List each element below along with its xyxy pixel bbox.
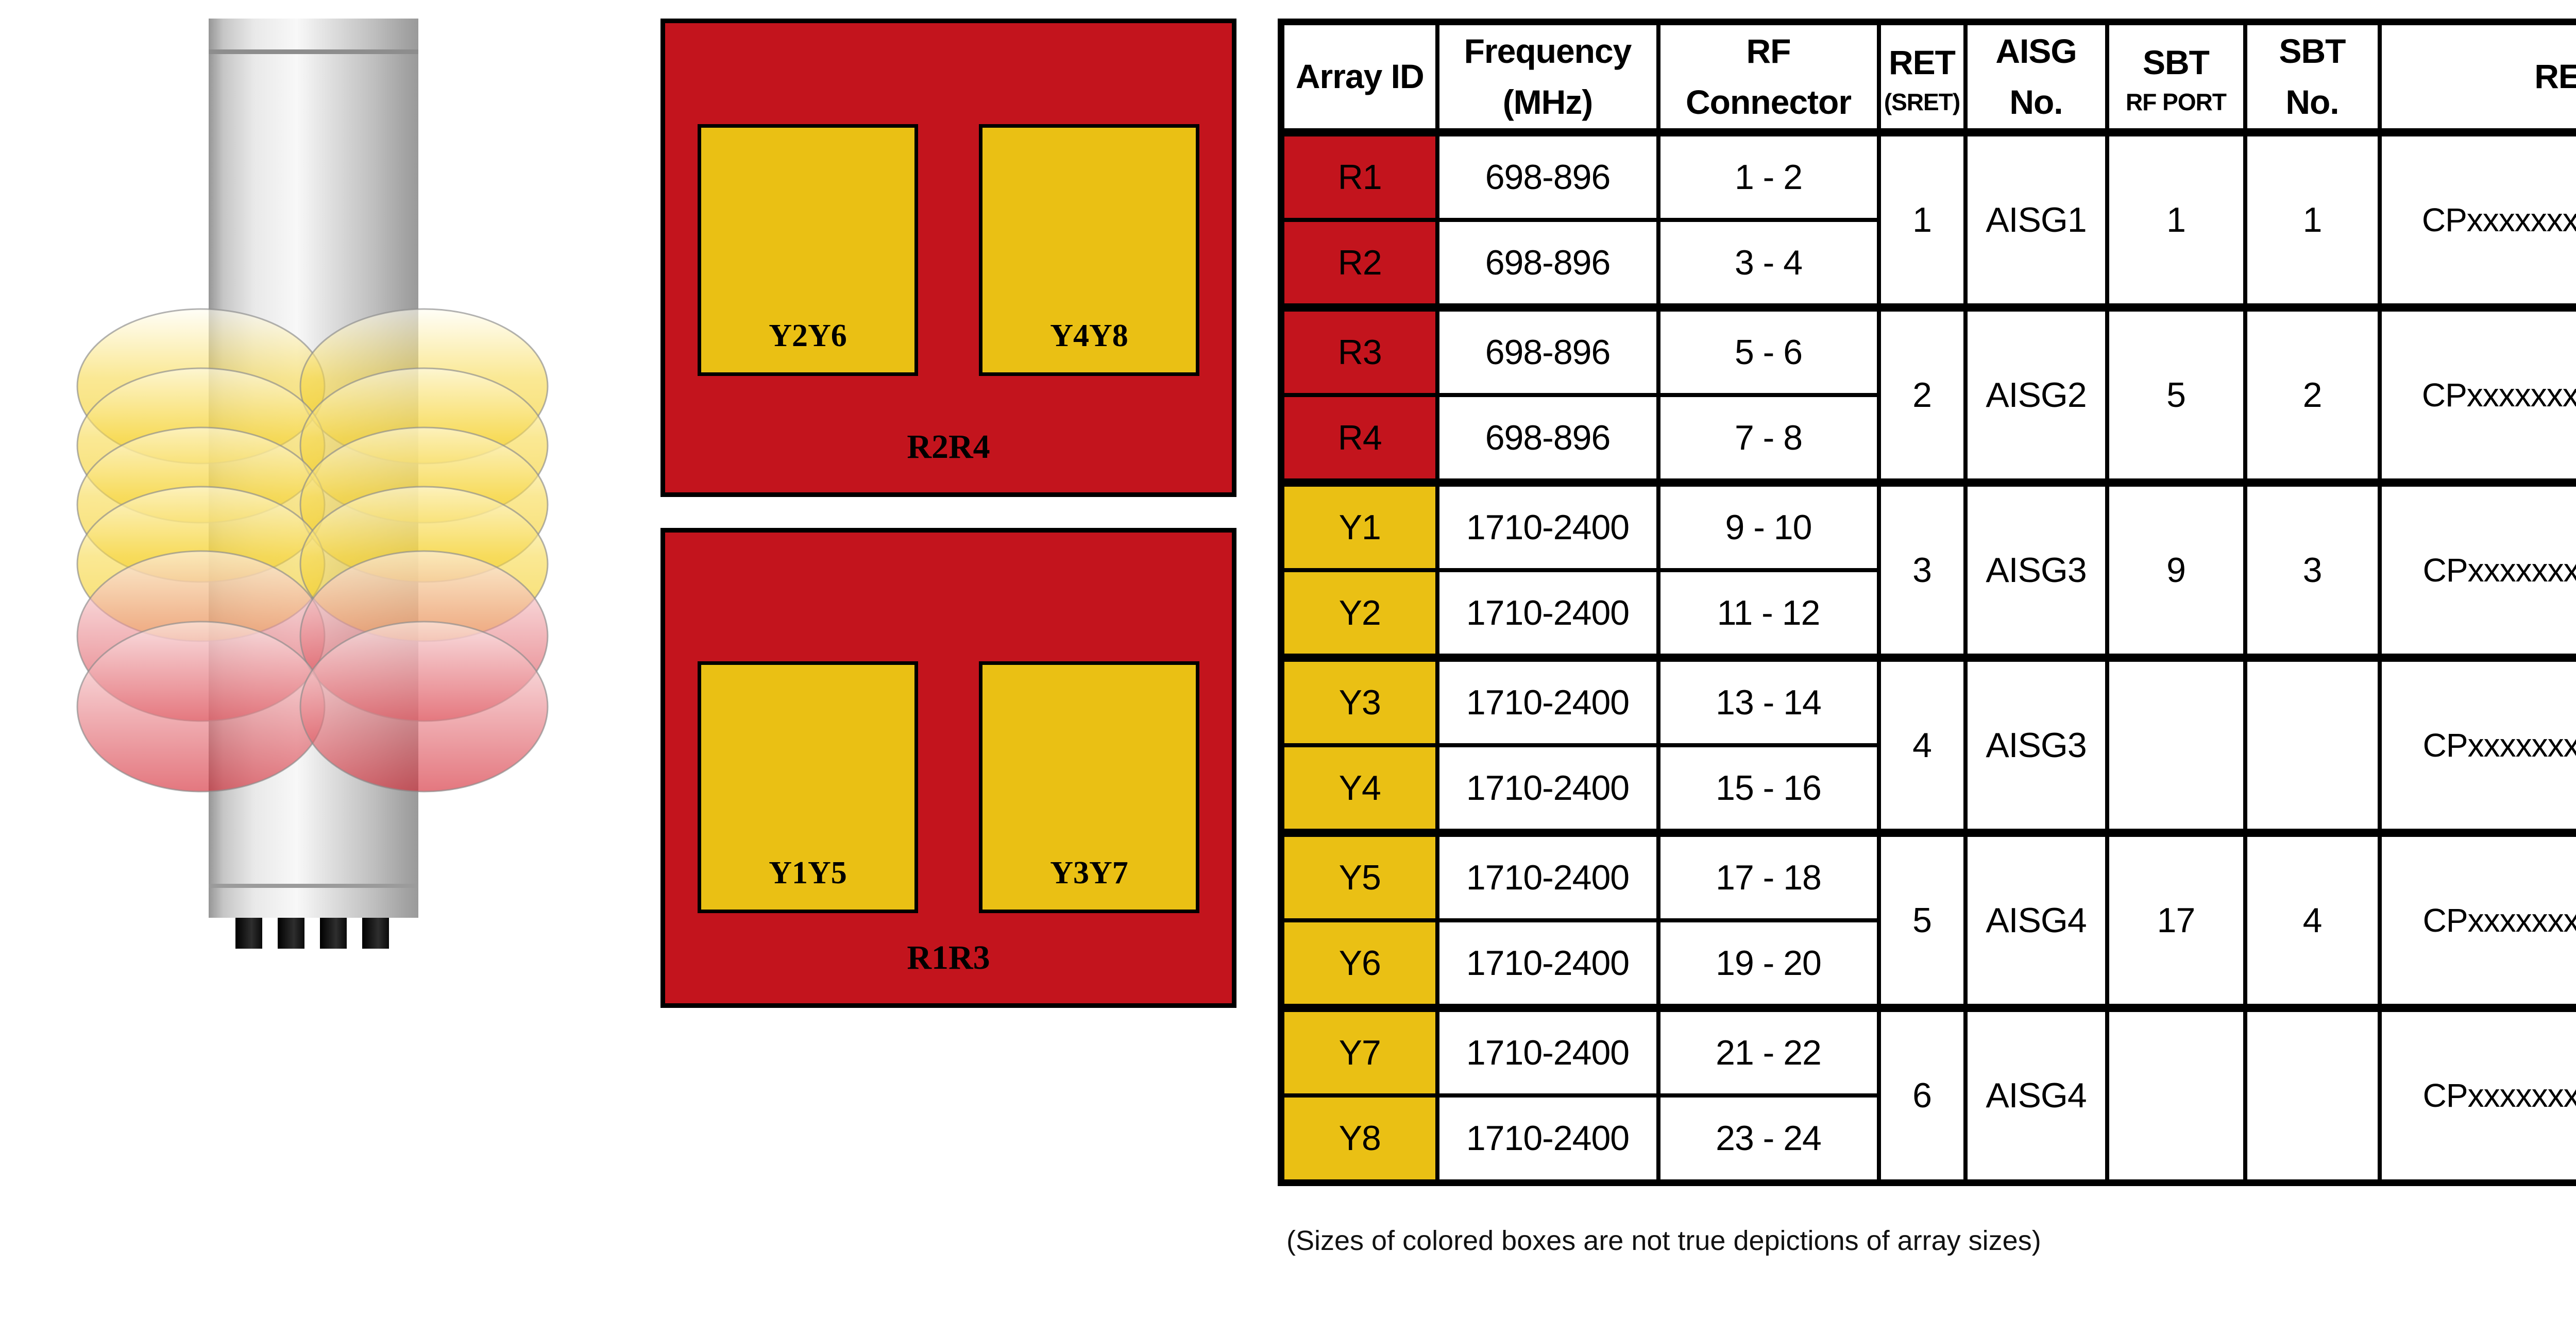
sub-array-label: Y4Y8 [982,318,1196,354]
array-box-r1r3: Y1Y5 Y3Y7 R1R3 [660,528,1236,1008]
rf-connector-cell: 3 - 4 [1658,220,1879,307]
sub-array-y2y6: Y2Y6 [698,124,918,376]
rf-connector-cell: 23 - 24 [1658,1095,1879,1183]
antenna-illustration [0,0,644,1030]
ret-uid-cell: CPxxxxxxxxxxxxxxxxxY1 [2380,483,2576,658]
table-header-row: Array ID Frequency (MHz) RF Connector RE… [1281,22,2576,132]
aisg-cell: AISG3 [1965,483,2107,658]
col-header-sbt-rf-port: SBT RF PORT [2107,22,2245,132]
array-id-cell: R4 [1281,395,1437,483]
aisg-cell: AISG2 [1965,307,2107,483]
footnote: (Sizes of colored boxes are not true dep… [1286,1225,2041,1257]
ret-cell: 6 [1879,1008,1965,1183]
rf-connector-cell: 13 - 14 [1658,658,1879,745]
col-header-ret: RET (SRET) [1879,22,1965,132]
frequency-cell: 698-896 [1437,220,1658,307]
frequency-cell: 1710-2400 [1437,833,1658,920]
table-row: Y5 1710-2400 17 - 18 5 AISG4 17 4 CPxxxx… [1281,833,2576,920]
array-box-label: R2R4 [665,427,1232,467]
aisg-cell: AISG4 [1965,1008,2107,1183]
frequency-cell: 1710-2400 [1437,1095,1658,1183]
connector-foot [320,918,347,949]
table-row: Y7 1710-2400 21 - 22 6 AISG4 CPxxxxxxxxx… [1281,1008,2576,1095]
sbt-no-cell: 4 [2245,833,2380,1008]
array-id-cell: R3 [1281,307,1437,395]
array-box-r2r4: Y2Y6 Y4Y8 R2R4 [660,19,1236,497]
ret-cell: 5 [1879,833,1965,1008]
connector-foot [362,918,389,949]
sbt-rf-port-cell: 5 [2107,307,2245,483]
sbt-no-cell: 2 [2245,307,2380,483]
col-header-aisg-no: AISG No. [1965,22,2107,132]
col-header-array-id: Array ID [1281,22,1437,132]
frequency-cell: 1710-2400 [1437,1008,1658,1095]
sbt-rf-port-cell: 9 [2107,483,2245,658]
sub-array-y1y5: Y1Y5 [698,661,918,913]
sbt-rf-port-cell [2107,1008,2245,1183]
antenna-top-seam [209,49,418,54]
frequency-cell: 698-896 [1437,307,1658,395]
ret-uid-cell: CPxxxxxxxxxxxxxxxxxR3 [2380,307,2576,483]
array-id-cell: Y1 [1281,483,1437,570]
rf-connector-cell: 19 - 20 [1658,920,1879,1008]
array-id-cell: Y7 [1281,1008,1437,1095]
rf-connector-cell: 21 - 22 [1658,1008,1879,1095]
ret-cell: 4 [1879,658,1965,833]
table-row: R3 698-896 5 - 6 2 AISG2 5 2 CPxxxxxxxxx… [1281,307,2576,395]
rf-connector-cell: 15 - 16 [1658,745,1879,833]
sub-array-y3y7: Y3Y7 [979,661,1199,913]
aisg-cell: AISG4 [1965,833,2107,1008]
frequency-cell: 1710-2400 [1437,658,1658,745]
array-id-cell: Y3 [1281,658,1437,745]
sbt-rf-port-cell: 17 [2107,833,2245,1008]
col-header-frequency: Frequency (MHz) [1437,22,1658,132]
sbt-no-cell: 3 [2245,483,2380,658]
array-id-cell: R1 [1281,132,1437,220]
sub-array-label: Y1Y5 [701,855,914,892]
array-id-cell: Y6 [1281,920,1437,1008]
ret-uid-cell: CPxxxxxxxxxxxxxxxxxY5 [2380,833,2576,1008]
sbt-rf-port-cell [2107,658,2245,833]
array-id-cell: Y5 [1281,833,1437,920]
sub-array-label: Y2Y6 [701,318,914,354]
sbt-no-cell [2245,1008,2380,1183]
rf-connector-cell: 9 - 10 [1658,483,1879,570]
frequency-cell: 1710-2400 [1437,745,1658,833]
connector-foot [278,918,304,949]
rf-connector-cell: 1 - 2 [1658,132,1879,220]
ret-uid-cell: CPxxxxxxxxxxxxxxxxxY3 [2380,658,2576,833]
antenna-bottom-seam [209,884,418,888]
frequency-cell: 1710-2400 [1437,483,1658,570]
table-row: Y1 1710-2400 9 - 10 3 AISG3 9 3 CPxxxxxx… [1281,483,2576,570]
col-header-ret-uid: RET UID [2380,22,2576,132]
sbt-no-cell: 1 [2245,132,2380,307]
frequency-cell: 1710-2400 [1437,920,1658,1008]
array-id-cell: Y8 [1281,1095,1437,1183]
frequency-cell: 698-896 [1437,132,1658,220]
antenna-connector-feet [235,918,389,949]
table-row: Y3 1710-2400 13 - 14 4 AISG3 CPxxxxxxxxx… [1281,658,2576,745]
rf-connector-cell: 17 - 18 [1658,833,1879,920]
rf-connector-cell: 11 - 12 [1658,570,1879,658]
sbt-rf-port-cell: 1 [2107,132,2245,307]
connector-foot [235,918,262,949]
aisg-cell: AISG1 [1965,132,2107,307]
sub-array-y4y8: Y4Y8 [979,124,1199,376]
page: Y2Y6 Y4Y8 R2R4 Y1Y5 Y3Y7 R1R3 Array ID F… [0,0,2576,1337]
ret-cell: 3 [1879,483,1965,658]
ret-cell: 2 [1879,307,1965,483]
sub-array-label: Y3Y7 [982,855,1196,892]
port-mapping-table: Array ID Frequency (MHz) RF Connector RE… [1278,19,2576,1186]
ret-cell: 1 [1879,132,1965,307]
ret-uid-cell: CPxxxxxxxxxxxxxxxxxY7 [2380,1008,2576,1183]
array-id-cell: Y4 [1281,745,1437,833]
array-box-label: R1R3 [665,938,1232,978]
rf-connector-cell: 7 - 8 [1658,395,1879,483]
array-id-cell: R2 [1281,220,1437,307]
col-header-sbt-no: SBT No. [2245,22,2380,132]
col-header-rf-connector: RF Connector [1658,22,1879,132]
aisg-cell: AISG3 [1965,658,2107,833]
sbt-no-cell [2245,658,2380,833]
array-id-cell: Y2 [1281,570,1437,658]
ret-uid-cell: CPxxxxxxxxxxxxxxxxxR1 [2380,132,2576,307]
table-row: R1 698-896 1 - 2 1 AISG1 1 1 CPxxxxxxxxx… [1281,132,2576,220]
frequency-cell: 698-896 [1437,395,1658,483]
frequency-cell: 1710-2400 [1437,570,1658,658]
rf-connector-cell: 5 - 6 [1658,307,1879,395]
